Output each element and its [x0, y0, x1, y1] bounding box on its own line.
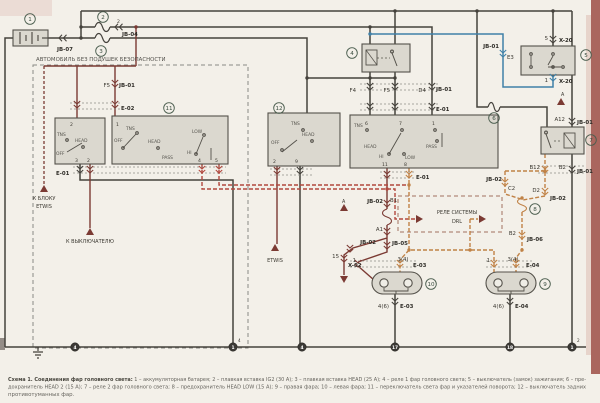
diagram-label: E-01 — [436, 107, 450, 113]
junction-dot — [468, 248, 471, 251]
bulb-icon — [380, 279, 388, 287]
diagram-label: HEAD — [364, 144, 377, 150]
headlight-wiring-diagram: JB-07JB-042АВТОМОБИЛЬ БЕЗ ПОДУШЕК БЕЗОПА… — [0, 0, 600, 403]
scan-edge-light — [586, 15, 591, 355]
diagram-label: 9 — [295, 159, 298, 165]
diagram-label: JB-01 — [576, 169, 593, 175]
junction-dot — [305, 76, 308, 79]
diagram-label: 1 — [116, 122, 119, 128]
junction-dot — [551, 9, 554, 12]
diagram-label: OFF — [56, 151, 65, 157]
diagram-label: LOW — [405, 155, 416, 161]
junction-dot — [543, 169, 546, 172]
diagram-label: 3(4) — [507, 257, 518, 263]
diagram-label: JB-06 — [526, 237, 543, 243]
svg-text:18: 18 — [507, 345, 513, 351]
diagram-label: E-03 — [400, 304, 414, 310]
junction-dot — [368, 32, 371, 35]
junction-dot — [393, 9, 396, 12]
bulb-icon — [494, 279, 502, 287]
svg-text:12: 12 — [275, 106, 282, 112]
diagram-label: HI — [379, 154, 384, 160]
svg-text:8: 8 — [533, 207, 537, 213]
diagram-label: JB-07 — [56, 47, 73, 53]
diagram-label: X-20 — [559, 79, 573, 85]
diagram-label: HI — [187, 150, 192, 156]
svg-text:1: 1 — [28, 17, 32, 23]
diagram-label: E-04 — [526, 263, 540, 269]
diagram-label: B2 — [509, 231, 516, 237]
diagram-label: 7 — [399, 121, 402, 127]
diagram-label: 1 — [432, 121, 435, 127]
diagram-label: 5 — [545, 36, 548, 42]
diagram-label: HEAD — [75, 138, 88, 144]
diagram-label: 6 — [365, 121, 368, 127]
junction-dot — [407, 248, 410, 251]
ground-node: 18 — [506, 343, 514, 351]
caption-line-1: 1 – аккумуляторная батарея; 2 – плавкая … — [133, 377, 586, 383]
diagram-label: LOW — [192, 129, 203, 135]
svg-text:4: 4 — [350, 51, 354, 57]
diagram-label: JB-02 — [366, 199, 383, 205]
svg-text:4: 4 — [300, 345, 303, 351]
headlight-relay-1 — [362, 44, 410, 72]
diagram-label: E-04 — [515, 304, 529, 310]
diagram-label: DRL — [452, 219, 462, 225]
diagram-label: АВТОМОБИЛЬ БЕЗ ПОДУШЕК БЕЗОПАСНОСТИ — [36, 57, 165, 63]
junction-dot — [393, 76, 396, 79]
junction-dot — [368, 25, 371, 28]
diagram-label: JB-02 — [359, 240, 376, 246]
diagram-label: HEAD — [148, 139, 161, 145]
svg-text:11: 11 — [165, 106, 173, 112]
svg-text:17: 17 — [392, 345, 398, 351]
diagram-label: К ВЫКЛЮЧАТЕЛЮ — [66, 239, 115, 245]
svg-text:10: 10 — [427, 282, 435, 288]
diagram-label: E-02 — [121, 106, 135, 112]
junction-dot — [520, 248, 523, 251]
diagram-label: 2 — [87, 158, 90, 164]
svg-text:1: 1 — [231, 345, 234, 351]
headlight-relay-2 — [541, 127, 584, 154]
junction-dot — [475, 9, 478, 12]
diagram-label: 1 — [487, 258, 490, 264]
diagram-label: 4(6) — [493, 304, 504, 310]
svg-text:4: 4 — [73, 345, 76, 351]
diagram-label: TNS — [56, 132, 66, 138]
diagram-label: A1 — [376, 227, 383, 233]
svg-text:7: 7 — [589, 138, 593, 144]
diagram-label: 15 — [332, 254, 339, 260]
diagram-label: E-01 — [416, 175, 430, 181]
diagram-label: F4 — [349, 88, 356, 94]
diagram-label: 4(6) — [378, 304, 389, 310]
diagram-label: PASS — [426, 144, 437, 150]
scan-edge-red-band — [591, 0, 600, 374]
caption-line-3: противотуманных фар. — [8, 392, 75, 398]
diagram-label: B2 — [559, 165, 566, 171]
left-headlamp — [372, 272, 422, 294]
diagram-label: 4 — [238, 338, 241, 343]
diagram-label: К БЛОКУ — [33, 196, 56, 202]
diagram-label: E-03 — [413, 263, 427, 269]
scanned-wiring-diagram-page: JB-07JB-042АВТОМОБИЛЬ БЕЗ ПОДУШЕК БЕЗОПА… — [0, 0, 600, 403]
bulb-icon — [404, 279, 412, 287]
diagram-label: B12 — [529, 165, 540, 171]
svg-text:3: 3 — [99, 49, 103, 55]
diagram-label: 3(4) — [397, 257, 408, 263]
diagram-label: JB-01 — [435, 87, 452, 93]
diagram-label: 3 — [75, 158, 78, 164]
diagram-label: D2 — [532, 188, 540, 194]
diagram-label: E3 — [507, 55, 514, 61]
junction-dot — [79, 25, 82, 28]
diagram-label: 2 — [117, 19, 120, 25]
diagram-label: C2 — [508, 186, 515, 192]
svg-text:9: 9 — [543, 282, 547, 288]
diagram-label: 5 — [215, 158, 218, 164]
junction-dot — [407, 183, 410, 186]
ground-node: 1 — [568, 343, 576, 351]
svg-text:2: 2 — [101, 15, 105, 21]
junction-dot — [385, 187, 388, 190]
diagram-label: ETWIS — [36, 204, 52, 210]
ignition-switch — [521, 46, 575, 75]
diagram-label: JB-02 — [549, 196, 566, 202]
junction-dot — [79, 36, 82, 39]
diagram-label: РЕЛЕ СИСТЕМЫ — [437, 210, 477, 216]
diagram-label: JB-01 — [576, 120, 593, 126]
diagram-label: TNS — [290, 121, 300, 127]
bulb-icon — [520, 279, 528, 287]
caption-line-2: дохранитель HEAD 2 (15 А); 7 – реле 2 фа… — [8, 384, 587, 391]
svg-text:6: 6 — [492, 116, 496, 122]
diagram-label: JB-05 — [391, 241, 408, 247]
diagram-label: JB-04 — [121, 32, 138, 38]
diagram-label: ETWIS — [267, 258, 283, 264]
light-switch-main — [350, 115, 498, 168]
diagram-label: 2 — [577, 338, 580, 343]
diagram-label: X-20 — [559, 38, 573, 44]
diagram-label: 4 — [198, 158, 201, 164]
scan-smudge-top-left — [0, 0, 52, 16]
diagram-label: JB-01 — [482, 44, 499, 50]
diagram-label: B1 — [390, 198, 397, 204]
diagram-label: 11 — [382, 162, 388, 168]
diagram-label: 1 — [545, 78, 548, 84]
diagram-label: F5 — [383, 88, 390, 94]
diagram-label: F5 — [103, 83, 110, 89]
diagram-label: E-01 — [56, 171, 70, 177]
diagram-label: JB-02 — [485, 177, 502, 183]
ground-node: 4 — [298, 343, 306, 351]
ground-node: 4 — [71, 343, 79, 351]
diagram-label: OFF — [271, 140, 280, 146]
rear-fog-switch — [268, 113, 340, 166]
caption-title: Схема 1. Соединения фар головного света: — [8, 376, 133, 383]
junction-dot — [368, 76, 371, 79]
svg-text:1: 1 — [570, 345, 573, 351]
junction-dot — [520, 196, 523, 199]
ground-node: 1 — [229, 343, 237, 351]
diagram-label: 2 — [273, 159, 276, 165]
diagram-label: A12 — [554, 117, 565, 123]
battery — [13, 30, 48, 46]
diagram-label: PASS — [162, 155, 173, 161]
svg-text:5: 5 — [584, 53, 588, 59]
diagram-label: JB-01 — [118, 83, 135, 89]
right-headlamp — [486, 272, 536, 294]
junction-dot — [134, 25, 137, 28]
diagram-label: TNS — [125, 126, 135, 132]
diagram-label: D4 — [418, 88, 426, 94]
diagram-label: TNS — [353, 123, 363, 129]
diagram-label: OFF — [114, 138, 123, 144]
diagram-label: HEAD — [302, 132, 315, 138]
svg-text:Схема 1. Соединения фар головн: Схема 1. Соединения фар головного света:… — [8, 376, 586, 383]
diagram-label: 2 — [70, 122, 73, 128]
diagram-label: 8 — [404, 162, 407, 168]
diagram-label: 1 — [353, 258, 356, 264]
ground-node: 17 — [391, 343, 399, 351]
